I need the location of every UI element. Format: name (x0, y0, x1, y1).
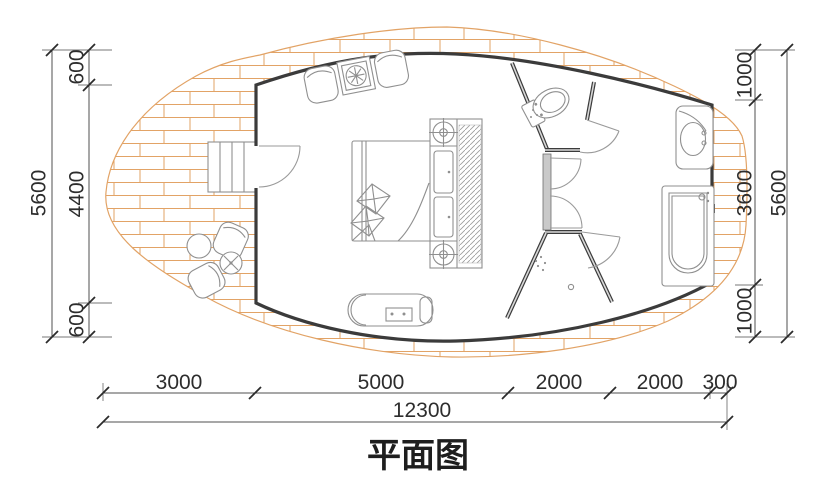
dim-label: 3000 (156, 371, 203, 394)
dim-label: 600 (65, 49, 88, 84)
dimension-left: 600 4400 600 5600 (27, 44, 112, 343)
washbasin (676, 106, 713, 169)
outdoor-table (187, 234, 211, 258)
dim-label: 12300 (393, 399, 451, 422)
dim-label: 5600 (27, 170, 50, 217)
dim-label: 5000 (358, 371, 405, 394)
wardrobe-hatch (459, 125, 481, 263)
drawing-title: 平面图 (367, 437, 469, 475)
dimension-right: 1000 3600 1000 5600 (733, 44, 795, 343)
dim-label: 300 (702, 371, 737, 394)
dim-label: 1000 (733, 52, 756, 99)
fire-pit (220, 252, 242, 274)
dim-label: 4400 (65, 171, 88, 218)
bathtub (662, 186, 714, 286)
mattress (352, 141, 432, 241)
corridor-partition (543, 154, 551, 230)
floor-plan-page: 600 4400 600 5600 1000 3600 1000 5600 30… (0, 0, 837, 496)
dim-label: 5600 (767, 170, 790, 217)
entry-stairs (208, 142, 256, 192)
low-cabinet (348, 294, 433, 326)
entry-opening (251, 146, 261, 188)
dimension-bottom: 3000 5000 2000 2000 300 12300 (97, 371, 738, 430)
dim-label: 2000 (637, 371, 684, 394)
floor-plan-canvas: 600 4400 600 5600 1000 3600 1000 5600 30… (0, 0, 837, 496)
dim-label: 600 (65, 302, 88, 337)
dim-label: 3600 (733, 170, 756, 217)
dim-label: 2000 (536, 371, 583, 394)
dim-label: 1000 (733, 288, 756, 335)
